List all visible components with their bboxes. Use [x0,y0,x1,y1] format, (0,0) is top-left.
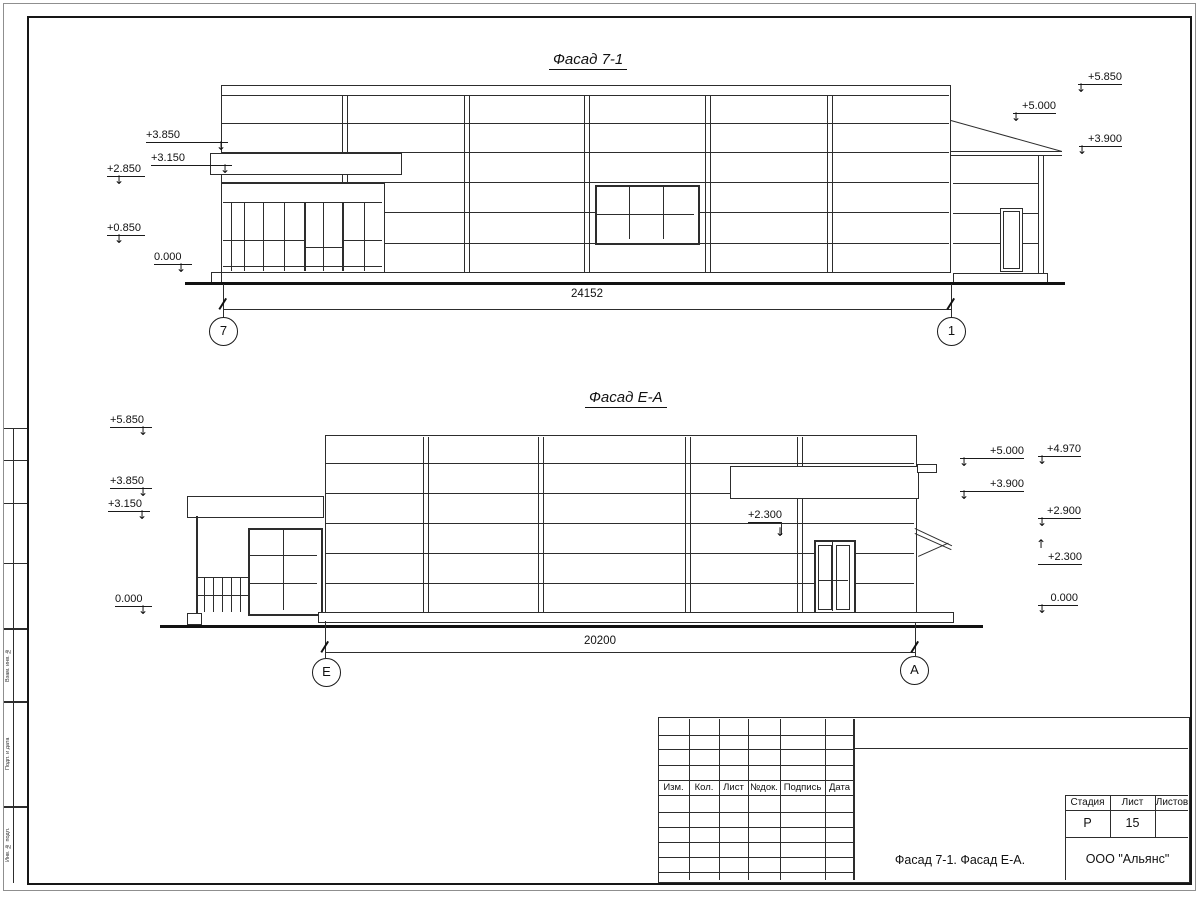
axis-stem [223,309,224,317]
dimension-line [223,309,951,310]
elevation-arrow-icon: ↓ [1037,604,1047,615]
siding-line [326,523,914,524]
title-block-line [659,872,853,873]
elevation-arrow-icon: ↓ [959,490,969,501]
annex-wall [196,516,198,613]
sheets-label: Листов [1155,796,1189,809]
annex-door-leaf [1003,211,1020,269]
door-rail [306,247,342,248]
elevation-mark: +5.850↓ [110,414,152,428]
dimension-label: 20200 [573,635,627,647]
title-block-line [748,719,749,880]
elevation-mark: +3.900↓ [1079,133,1122,147]
title-block-line [853,719,855,880]
title-block-line [659,812,853,813]
elevation-label: +3.850 [146,129,180,141]
annex-siding-line [953,183,1039,184]
window-mullion [629,187,630,239]
porch-picket [204,577,205,612]
sheet-value: 15 [1110,816,1155,831]
elevation-mark: +5.850↓ [1078,71,1122,85]
door-rail [818,580,848,581]
extension-line [915,623,916,652]
elevation-arrow-icon: ↓ [176,263,186,274]
stage-value: Р [1065,816,1110,831]
elevation-arrow-icon: ↓ [114,234,124,245]
elevation-mark: +2.300 [748,509,782,523]
porch-picket [222,577,223,612]
storefront-mullion [364,203,365,271]
window-mullion [663,187,664,239]
elevation-arrow-icon: ↓ [138,426,148,437]
entrance-canopy [210,153,402,175]
strip-label: Взам. инв. № [4,629,13,700]
elevation-mark: +3.850↓ [146,129,228,143]
elevation-arrow-icon: ↓ [1011,112,1021,123]
door-leaf [818,545,832,610]
window-rail [597,214,694,215]
grid-axis-bubble-1: 1 [937,317,966,346]
elevation-mark: +5.000↓ [1013,100,1056,114]
storefront-rail [223,240,304,241]
elevation-arrow-icon: ↓ [1077,145,1087,156]
ground-line [185,282,1065,285]
grid-axis-bubble-a: А [900,656,929,685]
storefront-mullion [284,203,285,271]
ground-line [160,625,983,628]
grid-axis-bubble-7: 7 [209,317,238,346]
annex-fascia [951,155,1062,156]
sign-band-tab [917,464,937,473]
sheet-label: Лист [1110,796,1155,809]
elevation-mark: +2.900↓ [1038,505,1081,519]
title-block-line [1066,810,1188,811]
elevation-label: +5.000 [1022,100,1056,112]
extension-line [951,284,952,309]
elevation-up-arrow-icon: ↑ [1036,539,1046,550]
rev-header-podpis: Подпись [780,781,825,794]
elevation-mark: +5.000↓ [960,445,1024,459]
extension-line [223,284,224,309]
siding-line [326,463,914,464]
column [705,95,711,273]
doc-title: Фасад 7-1. Фасад Е-А. [860,853,1060,868]
elevation-mark: +3.850↓ [110,475,152,489]
storefront-mullion [231,203,232,271]
column [538,437,544,612]
annex-plinth [187,613,202,625]
strip-line [4,503,27,504]
extension-line [325,621,326,652]
elevation-label: +2.300 [1048,551,1082,563]
elevation-mark: 0.000↓ [115,593,152,607]
column [584,95,590,273]
base-band [318,612,954,623]
org-name: ООО "Альянс" [1067,852,1188,867]
storefront-mullion [244,203,245,271]
rev-header-list: Лист [719,781,748,794]
column [827,95,833,273]
elevation-mark: 0.000↓ [1038,592,1078,606]
drawing-sheet: Взам. инв. № Подп. и дата Инв. № подл. Ф… [0,0,1200,900]
annex-wall [1038,155,1044,273]
elevation-arrow-icon: ↓ [1076,83,1086,94]
annex-siding-line [953,213,1039,214]
elevation-arrow-icon: ↓ [220,164,230,175]
elevation-label: +4.970 [1047,443,1081,455]
title-block-line [659,827,853,828]
elevation-arrow-icon: ↓ [138,487,148,498]
storefront-sill [223,266,382,267]
porch-picket [213,577,214,612]
door-jamb [342,203,344,271]
elevation-arrow-icon: ↓ [775,527,785,538]
door-center-stile [323,203,324,271]
elevation-label: +2.300 [748,509,782,521]
elevation-mark: +4.970↓ [1038,443,1081,457]
strip-line [4,563,27,564]
stage-label: Стадия [1065,796,1110,809]
elevation-arrow-icon: ↓ [137,510,147,521]
elevation-label: 0.000 [1050,592,1078,604]
dimension-label: 24152 [560,288,614,300]
storefront-mullion [263,203,264,271]
elevation-arrow-icon: ↓ [1037,455,1047,466]
elevation-arrow-icon: ↓ [959,457,969,468]
strip-line [4,460,27,461]
column [797,437,803,612]
strip-label-cell: Инв. № подл. [4,807,13,882]
elevation-mark: +3.150↓ [108,498,150,512]
title-block-line [780,719,781,880]
strip-label-cell: Подп. и дата [4,702,13,805]
elevation-label: +5.850 [1088,71,1122,83]
strip-label: Инв. № подл. [4,807,13,882]
elevation-mark: +0.850↓ [107,222,145,236]
title-block-line [719,719,720,880]
elevation-label: +3.900 [1088,133,1122,145]
column [464,95,470,273]
window-mullion [283,530,284,610]
annex-canopy [187,496,324,518]
grid-axis-bubble-e: Е [312,658,341,687]
storefront-rail [344,240,382,241]
dimension-line [325,652,915,653]
elevation-mark: +3.150↓ [151,152,232,166]
annex-siding-line [953,243,1039,244]
storefront-transom [223,202,382,203]
storefront [221,183,385,273]
elevation-arrow-icon: ↓ [114,175,124,186]
elevation-arrow-icon: ↓ [138,605,148,616]
annex-window [248,528,323,616]
title-block-line [659,765,853,766]
axis-stem [951,309,952,317]
facade-7-1-title: Фасад 7-1 [549,51,627,70]
rev-header-izm: Изм. [658,781,689,794]
title-block-line [659,795,853,796]
rev-header-dok: №док. [748,781,780,794]
elevation-arrow-icon: ↓ [1037,517,1047,528]
elevation-label: +5.000 [990,445,1024,457]
title-block-line [659,749,853,750]
elevation-mark: +2.300↑ [1038,551,1082,565]
window-rail [250,555,317,556]
elevation-arrow-icon: ↓ [216,141,226,152]
door-leaf [836,545,850,610]
title-block-line [855,748,1188,749]
column [685,437,691,612]
door-center-stile [832,542,833,611]
door-jamb [304,203,306,271]
title-block-line [1066,837,1188,838]
window [595,185,700,245]
window-rail [250,583,317,584]
elevation-label: +3.150 [151,152,185,164]
elevation-mark: +2.850↓ [107,163,145,177]
title-block-line [689,719,690,880]
elevation-mark: +3.900↓ [960,478,1024,492]
title-block-line [825,719,826,880]
sign-band [730,466,919,499]
rev-header-kol: Кол. [689,781,719,794]
annex-fascia [951,151,1062,152]
column [423,437,429,612]
elevation-label: +3.900 [990,478,1024,490]
elevation-label: +2.900 [1047,505,1081,517]
strip-label-cell: Взам. инв. № [4,629,13,700]
strip-line [4,428,27,429]
title-block-line [659,735,853,736]
facade-e-a-title: Фасад Е-А [585,389,667,408]
title-block-line [659,857,853,858]
rev-header-data: Дата [825,781,854,794]
strip-divider [13,428,14,883]
porch-picket [231,577,232,612]
elevation-mark: 0.000↓ [154,251,192,265]
porch-picket [240,577,241,612]
strip-label: Подп. и дата [4,702,13,805]
title-block-line [659,842,853,843]
